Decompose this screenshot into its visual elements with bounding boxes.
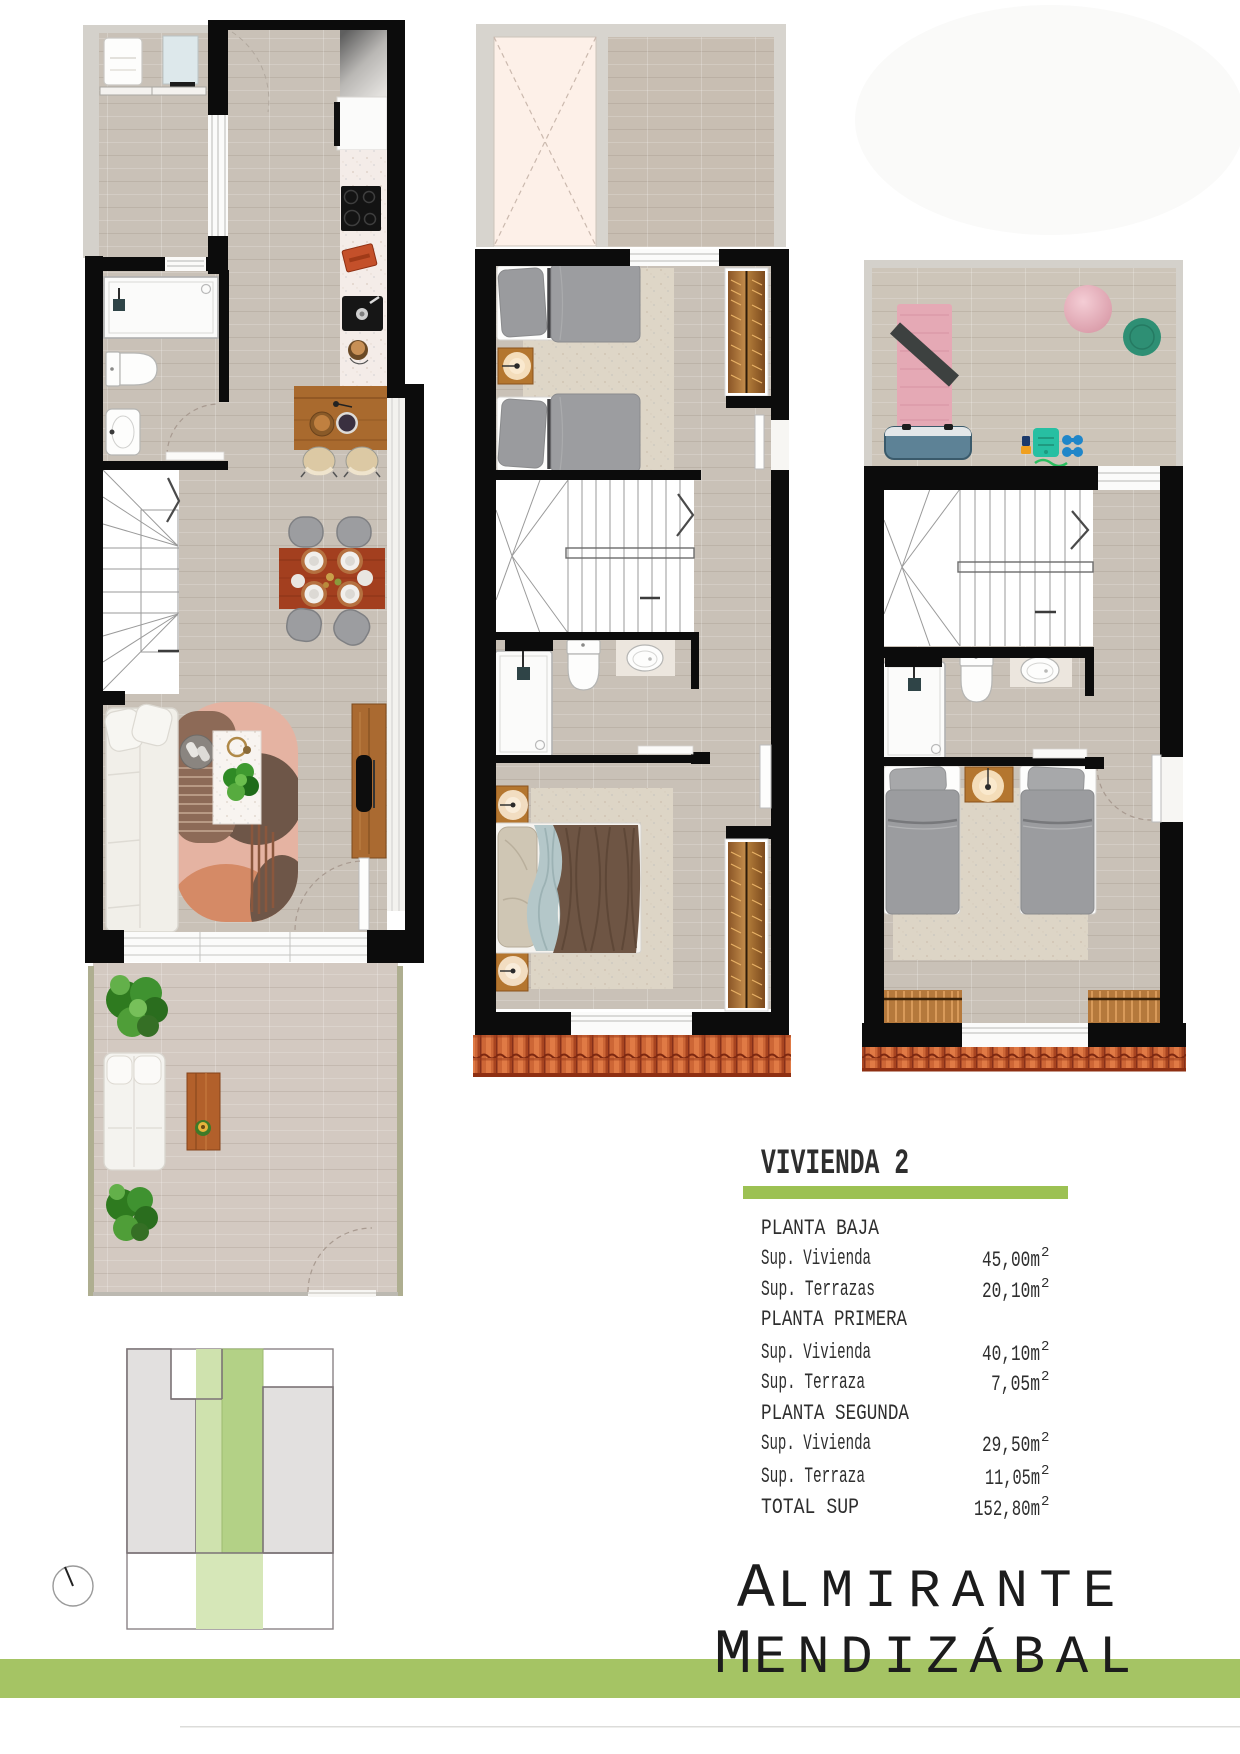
svg-text:40,10m: 40,10m bbox=[982, 1342, 1040, 1367]
svg-text:PLANTA PRIMERA: PLANTA PRIMERA bbox=[761, 1307, 908, 1332]
svg-text:152,80m: 152,80m bbox=[974, 1497, 1040, 1522]
svg-text:VIVIENDA 2: VIVIENDA 2 bbox=[761, 1144, 909, 1184]
svg-text:M: M bbox=[714, 1620, 752, 1691]
svg-text:Sup. Terrazas: Sup. Terrazas bbox=[761, 1277, 875, 1302]
svg-text:LMIRANTE: LMIRANTE bbox=[777, 1562, 1127, 1623]
svg-text:PLANTA SEGUNDA: PLANTA SEGUNDA bbox=[761, 1401, 910, 1426]
svg-text:Sup. Terraza: Sup. Terraza bbox=[761, 1370, 865, 1395]
svg-text:ENDIZÁBAL: ENDIZÁBAL bbox=[754, 1627, 1142, 1689]
svg-text:TOTAL SUP: TOTAL SUP bbox=[761, 1495, 859, 1520]
svg-text:A: A bbox=[737, 1554, 775, 1625]
svg-text:Sup. Vivienda: Sup. Vivienda bbox=[761, 1431, 871, 1456]
svg-text:45,00m: 45,00m bbox=[982, 1248, 1040, 1273]
svg-text:2: 2 bbox=[1041, 1494, 1049, 1510]
svg-text:2: 2 bbox=[1041, 1369, 1049, 1385]
svg-text:2: 2 bbox=[1041, 1430, 1049, 1446]
svg-text:11,05m: 11,05m bbox=[985, 1466, 1040, 1491]
svg-text:Sup. Vivienda: Sup. Vivienda bbox=[761, 1340, 871, 1365]
svg-text:Sup. Vivienda: Sup. Vivienda bbox=[761, 1246, 871, 1271]
svg-text:20,10m: 20,10m bbox=[982, 1279, 1040, 1304]
svg-text:Sup. Terraza: Sup. Terraza bbox=[761, 1464, 865, 1489]
svg-text:7,05m: 7,05m bbox=[991, 1372, 1040, 1397]
svg-text:2: 2 bbox=[1041, 1276, 1049, 1292]
svg-text:29,50m: 29,50m bbox=[982, 1433, 1040, 1458]
svg-text:2: 2 bbox=[1041, 1463, 1049, 1479]
svg-text:PLANTA BAJA: PLANTA BAJA bbox=[761, 1216, 880, 1241]
svg-text:2: 2 bbox=[1041, 1245, 1049, 1261]
svg-text:2: 2 bbox=[1041, 1339, 1049, 1355]
